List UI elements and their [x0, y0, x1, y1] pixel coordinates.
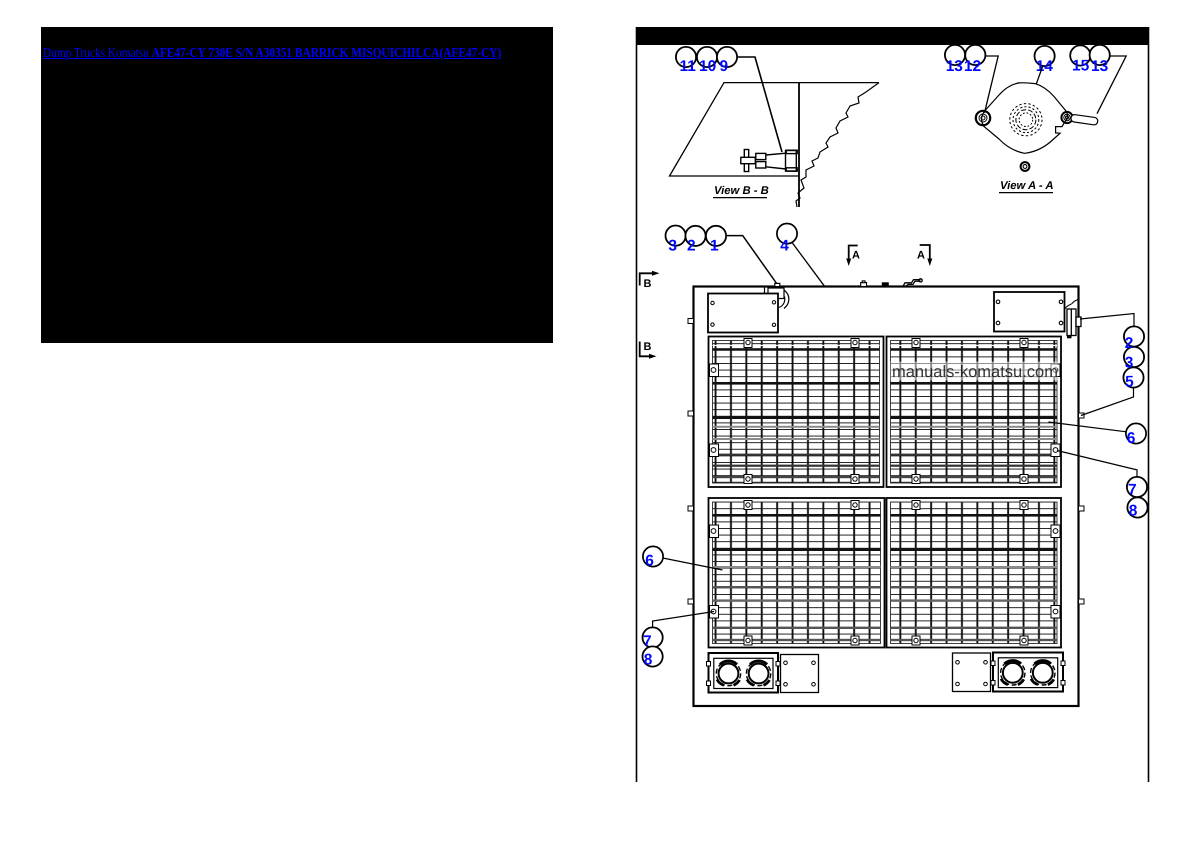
- svg-text:7: 7: [1128, 482, 1137, 499]
- svg-text:7: 7: [643, 633, 652, 650]
- svg-text:3: 3: [1125, 355, 1134, 372]
- svg-text:1: 1: [710, 237, 719, 254]
- svg-text:10: 10: [699, 58, 716, 75]
- svg-text:13: 13: [946, 58, 964, 75]
- svg-text:6: 6: [645, 553, 654, 570]
- svg-text:4: 4: [780, 237, 789, 254]
- svg-text:12: 12: [964, 58, 981, 75]
- svg-text:View A - A: View A - A: [1000, 180, 1054, 192]
- svg-text:manuals-komatsu.com: manuals-komatsu.com: [892, 363, 1058, 381]
- svg-text:8: 8: [1129, 503, 1138, 520]
- svg-text:B: B: [644, 278, 652, 290]
- svg-text:8: 8: [644, 652, 653, 669]
- svg-text:2: 2: [1125, 335, 1134, 352]
- svg-text:B: B: [644, 341, 652, 353]
- svg-text:A: A: [852, 250, 860, 262]
- svg-text:2: 2: [687, 237, 696, 254]
- svg-text:5: 5: [1125, 374, 1134, 391]
- svg-text:11: 11: [680, 58, 697, 75]
- svg-text:14: 14: [1036, 58, 1054, 75]
- svg-text:View B - B: View B - B: [714, 185, 769, 197]
- svg-text:6: 6: [1127, 430, 1136, 447]
- svg-text:13: 13: [1091, 58, 1109, 75]
- svg-text:9: 9: [720, 58, 729, 75]
- svg-text:3: 3: [668, 237, 677, 254]
- svg-text:15: 15: [1072, 58, 1090, 75]
- svg-text:A: A: [917, 250, 925, 262]
